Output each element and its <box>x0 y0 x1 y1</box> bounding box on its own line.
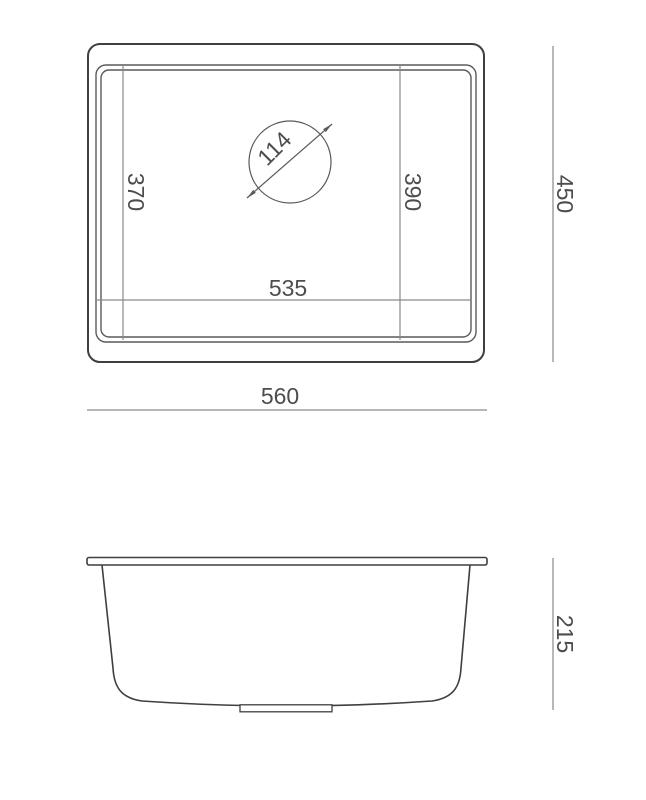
dim-label-overall-width: 560 <box>261 383 299 409</box>
side-view <box>87 558 487 712</box>
dim-label-height: 215 <box>552 615 578 653</box>
bowl-cross-section <box>102 565 470 706</box>
height-dimension: 215 <box>552 558 578 710</box>
dim-label-overall-depth: 450 <box>552 175 578 213</box>
drain-boss <box>240 705 332 712</box>
dim-label-right-depth: 390 <box>400 173 426 211</box>
sink-dimension-drawing: 114 370 390 535 560 450 215 <box>0 0 646 800</box>
overall-depth-dimension: 450 <box>552 46 578 362</box>
dim-label-left-depth: 370 <box>123 173 149 211</box>
top-view: 114 370 390 535 <box>88 44 484 362</box>
flange <box>87 558 487 566</box>
dim-label-bowl-width: 535 <box>269 275 307 301</box>
overall-width-dimension: 560 <box>87 383 487 410</box>
